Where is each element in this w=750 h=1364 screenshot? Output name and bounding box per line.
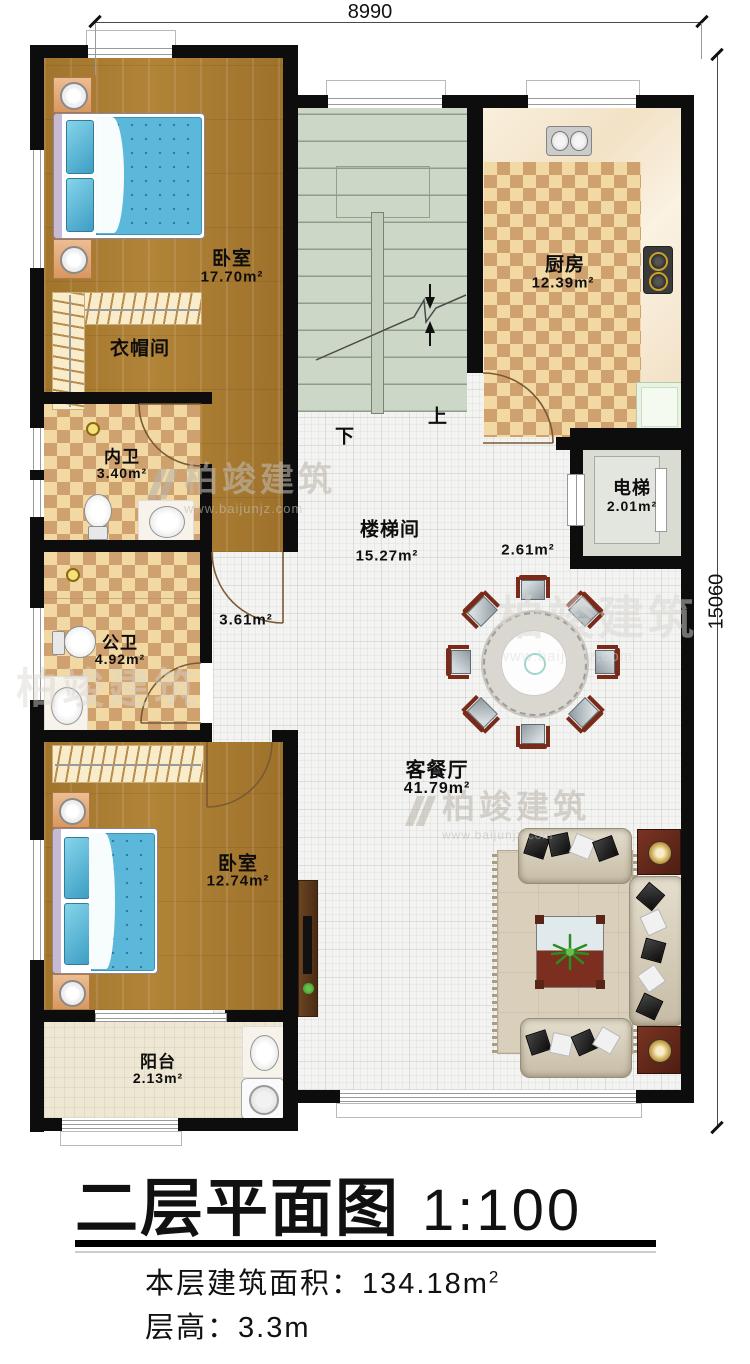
watermark-url: www.baijunjz.com bbox=[498, 648, 698, 665]
brand-logo-icon bbox=[150, 467, 176, 501]
room-label-elevator: 电梯 bbox=[613, 474, 651, 500]
watermark: 柏竣建筑 www.baijunjz.com bbox=[150, 452, 336, 516]
area-hall-by-elevator: 2.61m² bbox=[501, 542, 555, 559]
floor-height-label: 层高： bbox=[145, 1312, 238, 1344]
watermark-brand: 柏竣建筑 bbox=[184, 452, 336, 501]
room-label-balcony: 阳台 bbox=[140, 1048, 176, 1073]
room-area-kitchen: 12.39m² bbox=[532, 275, 595, 292]
room-area-stairwell: 15.27m² bbox=[356, 548, 419, 565]
plan-title: 二层平面图 bbox=[75, 1158, 400, 1249]
title-underline bbox=[75, 1240, 656, 1247]
dimension-width: 8990 bbox=[330, 1, 410, 24]
dimension-connector bbox=[95, 23, 96, 75]
floor-area-value: 134.18m bbox=[362, 1268, 489, 1300]
floor-height-line: 层高：3.3m bbox=[145, 1304, 311, 1346]
room-area-inner-bath: 3.40m² bbox=[97, 465, 147, 481]
brand-logo-icon bbox=[408, 794, 434, 828]
balcony-slider-door bbox=[95, 1013, 227, 1022]
stair-up-label: 上 bbox=[428, 402, 448, 429]
watermark: 柏竣建筑 www.baijunjz.com bbox=[498, 582, 698, 665]
watermark-brand: 柏竣建筑 bbox=[498, 582, 698, 648]
room-label-cloakroom: 衣帽间 bbox=[110, 334, 170, 361]
floor-area-label: 本层建筑面积： bbox=[145, 1268, 362, 1300]
room-area-public-bath: 4.92m² bbox=[95, 651, 145, 667]
floor-area-sup: 2 bbox=[489, 1267, 500, 1286]
dimension-height: 15060 bbox=[706, 562, 729, 642]
room-label-kitchen: 厨房 bbox=[545, 250, 585, 277]
room-area-elevator: 2.01m² bbox=[607, 498, 657, 514]
title-block: 二层平面图 1:100 bbox=[75, 1158, 582, 1249]
floor-plan-page: 柏竣建筑 www.baijunjz.com 柏竣建筑 www.baijunjz.… bbox=[0, 0, 750, 1364]
room-label-inner-bath: 内卫 bbox=[104, 443, 140, 468]
watermark-url: www.baijunjz.com bbox=[184, 501, 336, 516]
dimension-connector bbox=[701, 23, 702, 59]
plan-scale: 1:100 bbox=[422, 1177, 582, 1244]
watermark-url: www.baijunjz.com bbox=[442, 828, 590, 842]
area-hall-corridor: 3.61m² bbox=[219, 612, 273, 629]
room-label-living-dining: 客餐厅 bbox=[406, 754, 469, 783]
room-area-balcony: 2.13m² bbox=[133, 1070, 183, 1086]
room-label-public-bath: 公卫 bbox=[102, 629, 138, 654]
title-underline-light bbox=[75, 1251, 656, 1253]
stair-break-line bbox=[316, 295, 466, 360]
room-label-bedroom1: 卧室 bbox=[212, 244, 252, 271]
floor-area-line: 本层建筑面积：134.18m2 bbox=[145, 1260, 500, 1302]
room-label-stairwell: 楼梯间 bbox=[360, 515, 420, 542]
room-area-living-dining: 41.79m² bbox=[404, 780, 471, 798]
elevator-door bbox=[567, 474, 585, 526]
room-label-bedroom2: 卧室 bbox=[218, 849, 258, 876]
stair-down-label: 下 bbox=[335, 422, 355, 449]
floor-height-value: 3.3m bbox=[238, 1312, 310, 1344]
room-area-bedroom1: 17.70m² bbox=[201, 269, 264, 286]
room-area-bedroom2: 12.74m² bbox=[207, 873, 270, 890]
